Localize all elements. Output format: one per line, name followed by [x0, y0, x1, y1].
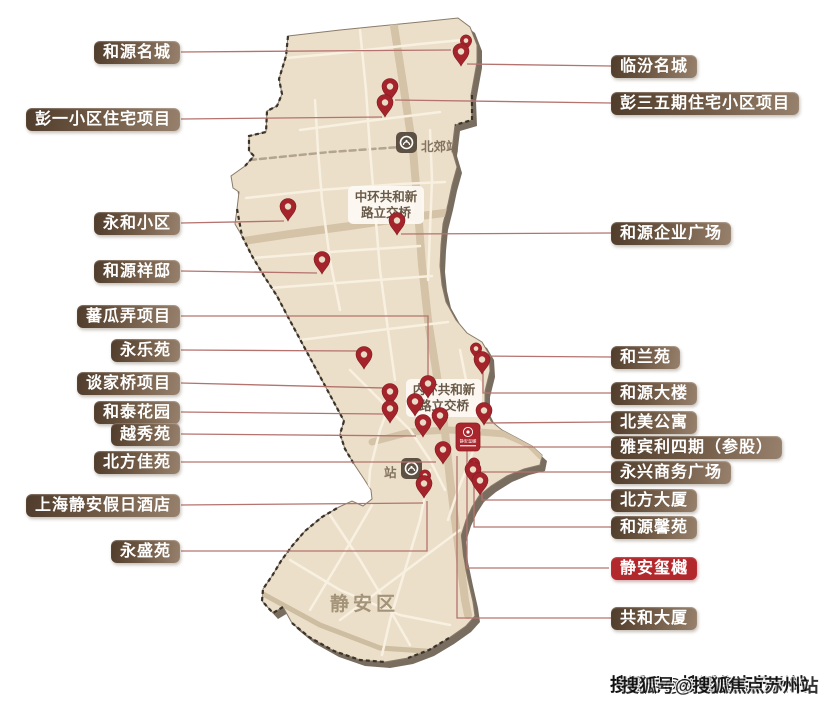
label-connector-line — [478, 356, 611, 357]
pins-and-connectors: 静安玺樾 — [0, 0, 830, 704]
map-infographic: 中环共和新 路立交桥 内环共和新 路立交桥 北郊站 站 静安区 静安玺樾 和源名… — [0, 0, 830, 704]
label-connector-line — [482, 493, 611, 500]
label-connector-line — [181, 503, 423, 505]
map-pin — [453, 44, 469, 67]
map-pin — [476, 403, 492, 426]
map-pin — [415, 415, 431, 438]
map-pin — [435, 442, 451, 465]
project-logo: 静安玺樾 — [456, 423, 480, 451]
label-connector-line — [181, 412, 383, 414]
label-connector-line — [181, 434, 416, 436]
watermark-text-echo: 搜狐号@搜狐焦点苏州站 — [621, 672, 819, 698]
map-pin — [474, 352, 490, 375]
label-connector-line — [181, 383, 384, 388]
label-connector-line — [401, 233, 611, 234]
label-connector-line — [395, 100, 611, 103]
project-logo-name: 静安玺樾 — [460, 438, 478, 445]
map-pin — [407, 394, 423, 417]
map-pin — [420, 376, 436, 399]
map-pin — [416, 476, 432, 499]
map-pin — [377, 95, 393, 118]
label-connector-line — [181, 316, 428, 378]
label-connector-line — [181, 501, 427, 551]
label-connector-line — [181, 50, 451, 52]
map-pin — [280, 199, 296, 222]
map-pin — [389, 213, 405, 236]
map-pin — [356, 347, 372, 370]
label-connector-line — [485, 422, 611, 423]
label-connector-line — [181, 117, 382, 119]
label-connector-line — [181, 221, 284, 223]
label-connector-line — [483, 372, 611, 393]
label-connector-line — [467, 64, 611, 66]
map-pin — [432, 408, 448, 431]
label-connector-line — [467, 451, 609, 568]
label-connector-line — [181, 350, 357, 351]
label-connector-line — [474, 484, 611, 527]
map-pin — [314, 252, 330, 275]
label-connector-line — [181, 271, 317, 273]
map-pin — [382, 401, 398, 424]
